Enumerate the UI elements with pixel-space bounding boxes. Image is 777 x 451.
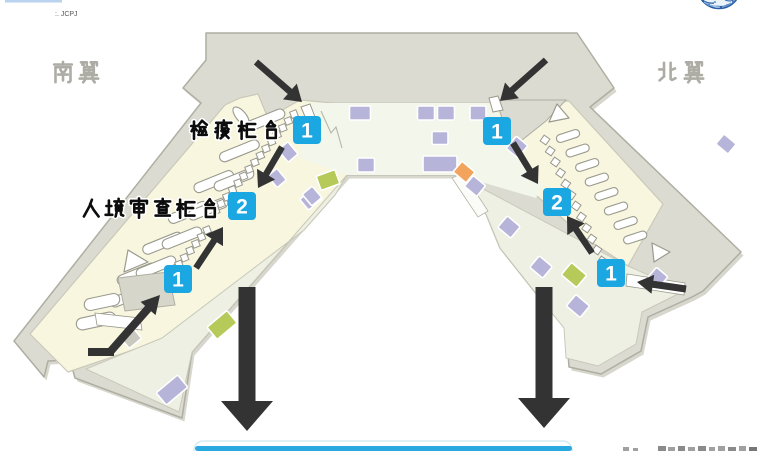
svg-text:1: 1 [491, 121, 503, 144]
svg-text:1: 1 [605, 263, 617, 286]
svg-text:1: 1 [172, 269, 184, 292]
svg-text:1: 1 [301, 120, 313, 143]
svg-text:2: 2 [551, 192, 563, 215]
svg-text::. JCPJ: :. JCPJ [55, 11, 78, 18]
svg-text:2: 2 [236, 196, 248, 219]
